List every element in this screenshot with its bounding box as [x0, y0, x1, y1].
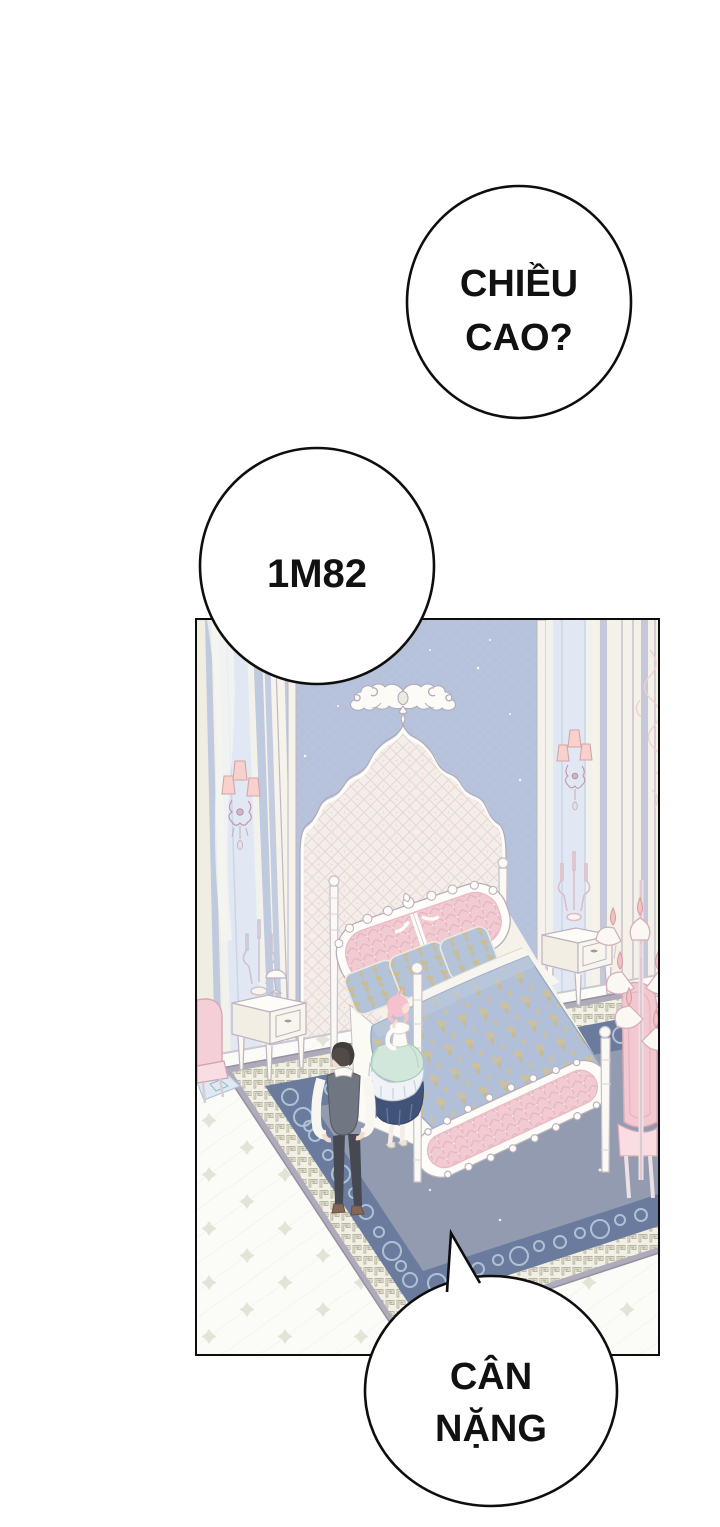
svg-text:CAO?: CAO? [465, 317, 573, 359]
svg-text:1M82: 1M82 [267, 552, 367, 596]
svg-text:CÂN: CÂN [450, 1354, 532, 1398]
svg-text:CHIỀU: CHIỀU [460, 261, 578, 305]
svg-text:NẶNG: NẶNG [435, 1406, 547, 1450]
